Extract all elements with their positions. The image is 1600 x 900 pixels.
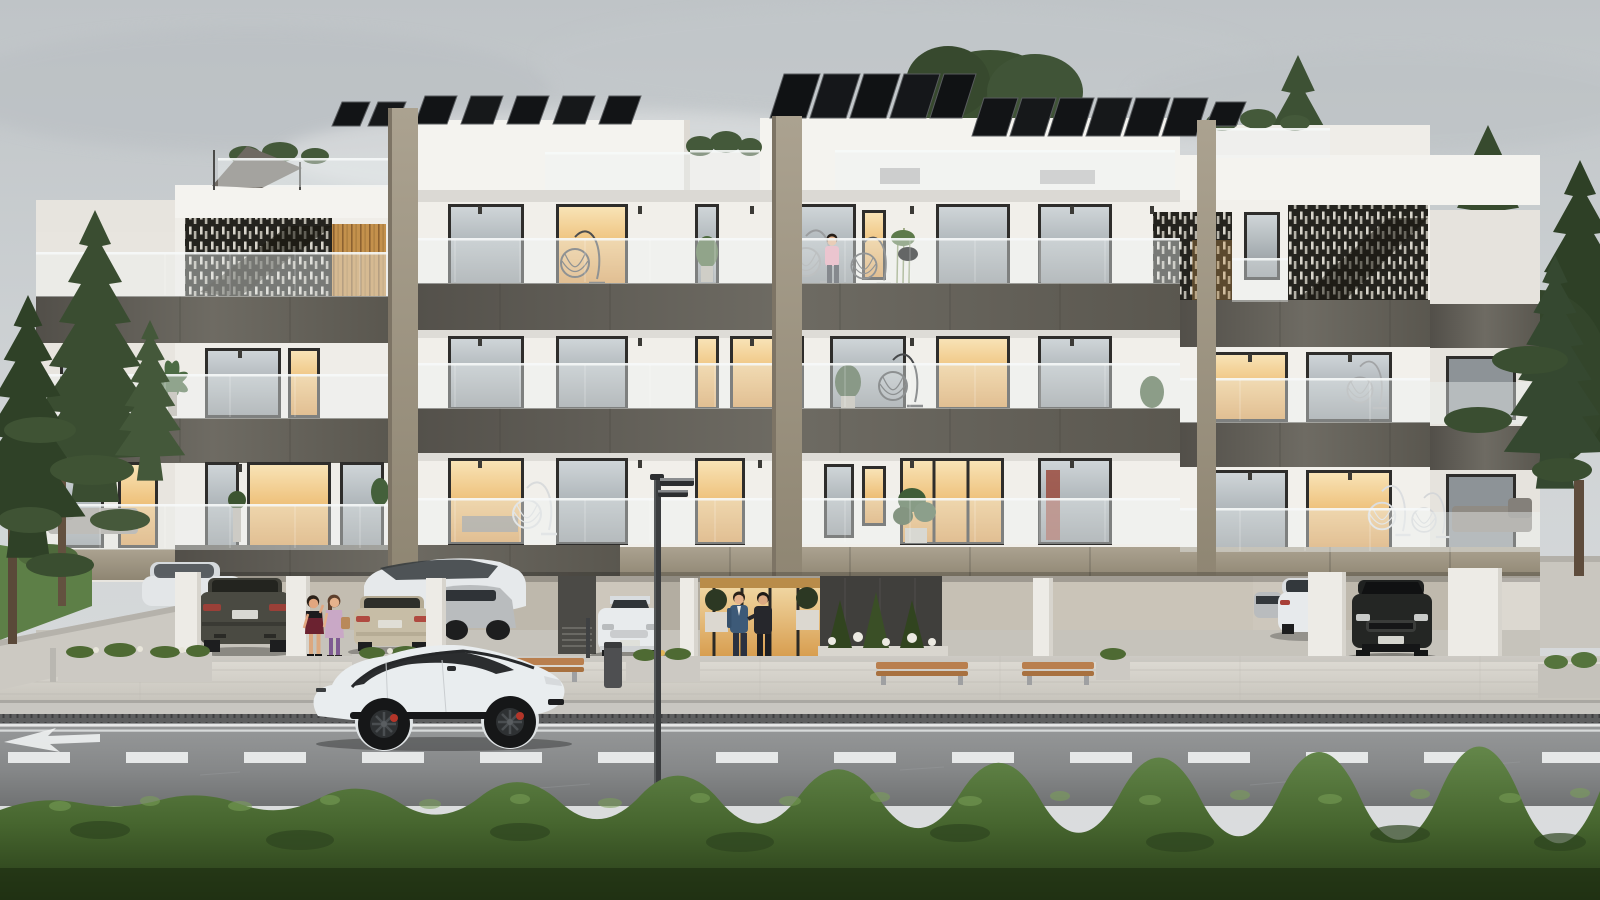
right-wing-parapet	[1180, 155, 1540, 205]
accent-pilaster	[388, 108, 418, 576]
solar-array	[770, 74, 976, 118]
brake-caliper	[390, 714, 398, 722]
roof-furniture	[880, 168, 920, 184]
left-wing-parapet	[175, 185, 390, 218]
balcony-plant	[371, 478, 389, 506]
bollard	[50, 648, 56, 682]
pillar	[1448, 568, 1502, 664]
car-taillight	[316, 688, 326, 692]
car-wheel-front	[484, 696, 536, 748]
lattice-screen-right	[1153, 205, 1428, 305]
litter-bin	[604, 642, 622, 688]
parked-car-silver-right	[1254, 592, 1282, 618]
render-canvas	[0, 0, 1600, 900]
drainage-grate	[0, 714, 1600, 723]
roof-furniture	[1040, 170, 1095, 184]
flower-planter	[58, 643, 212, 682]
accent-pilaster	[1197, 120, 1216, 576]
edge-line	[0, 730, 1600, 732]
handbag	[341, 617, 350, 629]
tree-trunk	[1574, 480, 1584, 576]
parking-level	[36, 558, 1540, 665]
flower-planter	[626, 648, 700, 682]
flower-planter	[1096, 648, 1130, 680]
accent-pilaster	[772, 116, 802, 576]
solar-array	[415, 96, 641, 124]
car-mirror	[447, 666, 456, 671]
car-shadow	[316, 737, 572, 751]
retaining-wall-right	[1540, 556, 1600, 648]
pillar	[1308, 572, 1346, 662]
edge-line	[0, 724, 1600, 727]
road	[0, 700, 1600, 806]
architectural-render	[0, 0, 1600, 900]
signal-post	[586, 618, 590, 658]
louvered-wall	[558, 576, 596, 654]
car-wheel-rear	[358, 698, 410, 750]
brake-caliper	[516, 712, 524, 720]
far-left-parapet	[36, 200, 175, 232]
